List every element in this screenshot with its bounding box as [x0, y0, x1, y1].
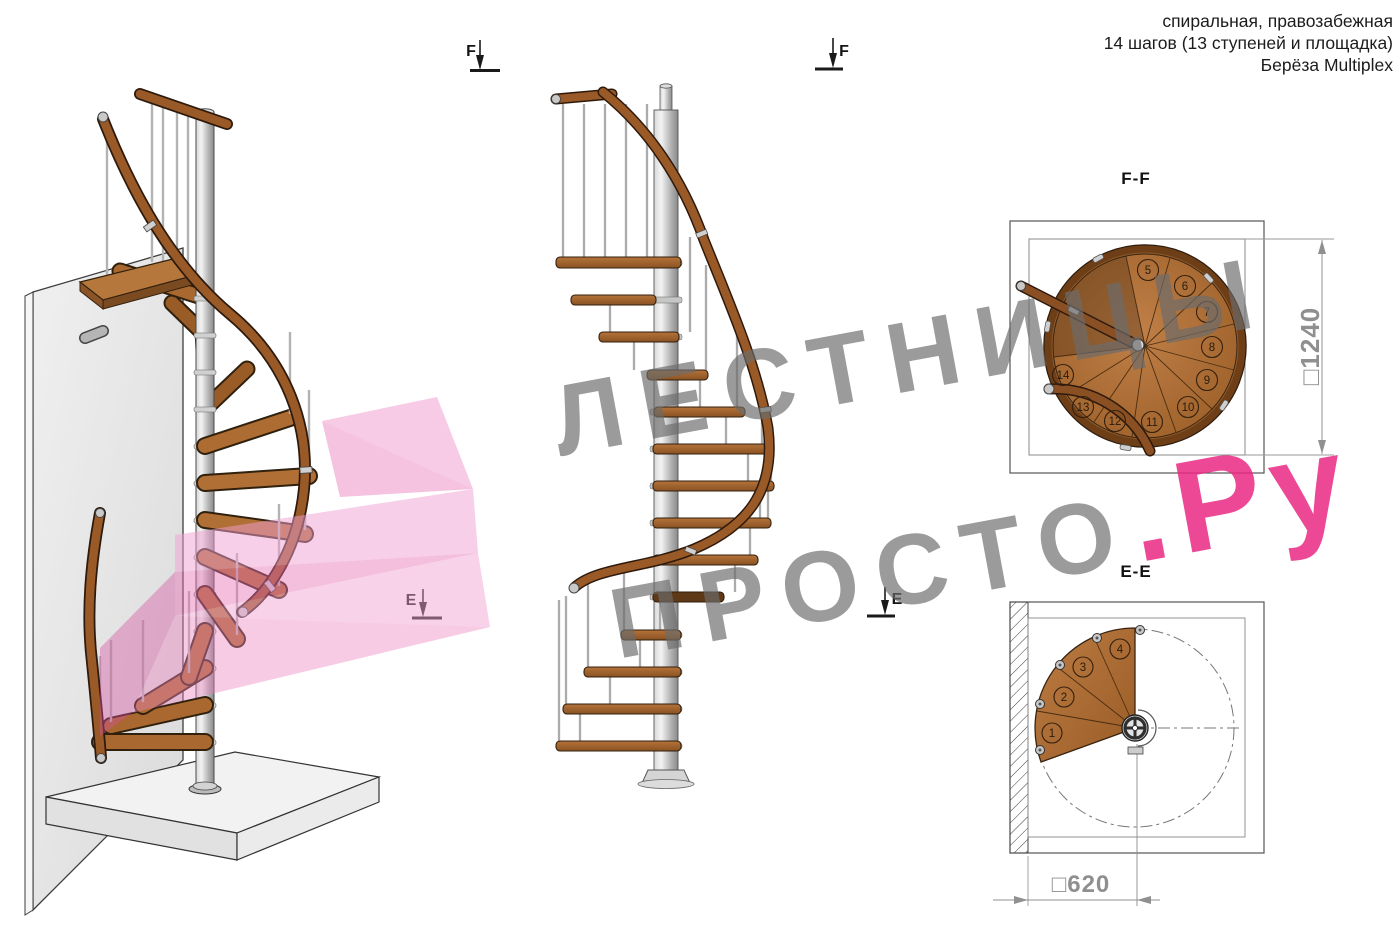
ff-dimension: □1240 — [1295, 307, 1325, 386]
marker-letter-e-right: E — [892, 591, 903, 608]
wall-handrail-bracket — [85, 331, 103, 338]
svg-text:14: 14 — [1057, 370, 1070, 382]
staircase-drawing: F F E E F-F □1240 — [0, 0, 1400, 934]
ee-step-fan: 1 2 3 4 — [1035, 626, 1144, 763]
svg-text:5: 5 — [1145, 265, 1151, 277]
header-text: спиральная, правозабежная 14 шагов (13 с… — [1104, 11, 1394, 75]
section-ff: F-F □1240 — [1010, 169, 1334, 473]
marker-letter-f-left: F — [466, 43, 476, 60]
render-3d — [25, 94, 379, 915]
ee-wall-hatch — [1010, 602, 1028, 853]
svg-text:9: 9 — [1204, 375, 1210, 387]
svg-text:7: 7 — [1204, 307, 1210, 319]
svg-text:1: 1 — [1049, 728, 1055, 740]
svg-text:3: 3 — [1080, 662, 1086, 674]
ee-title: E-E — [1120, 562, 1151, 581]
svg-text:12: 12 — [1109, 416, 1122, 428]
header-line2: 14 шагов (13 ступеней и площадка) — [1104, 33, 1393, 53]
header-line1: спиральная, правозабежная — [1162, 11, 1393, 31]
ee-dimension: □620 — [1052, 871, 1111, 898]
drawing-canvas: F F E E F-F □1240 — [0, 0, 1400, 934]
svg-text:13: 13 — [1077, 402, 1090, 414]
section-marker-e-left — [412, 589, 442, 618]
svg-text:6: 6 — [1182, 281, 1188, 293]
svg-text:4: 4 — [1117, 644, 1124, 656]
elevation-view — [552, 84, 775, 789]
marker-letter-f-right: F — [839, 43, 849, 60]
section-ee: E-E — [993, 562, 1264, 906]
section-markers — [412, 38, 895, 618]
svg-text:10: 10 — [1182, 402, 1195, 414]
svg-text:2: 2 — [1061, 692, 1067, 704]
header-line3: Берёза Multiplex — [1261, 55, 1394, 75]
wall-edge — [25, 292, 33, 915]
svg-text:8: 8 — [1209, 342, 1215, 354]
ff-stair-disc: 5 6 7 8 9 10 11 12 13 14 — [1017, 245, 1247, 451]
ff-title: F-F — [1121, 169, 1150, 188]
svg-text:11: 11 — [1146, 417, 1158, 429]
marker-letter-e-left: E — [406, 592, 417, 609]
